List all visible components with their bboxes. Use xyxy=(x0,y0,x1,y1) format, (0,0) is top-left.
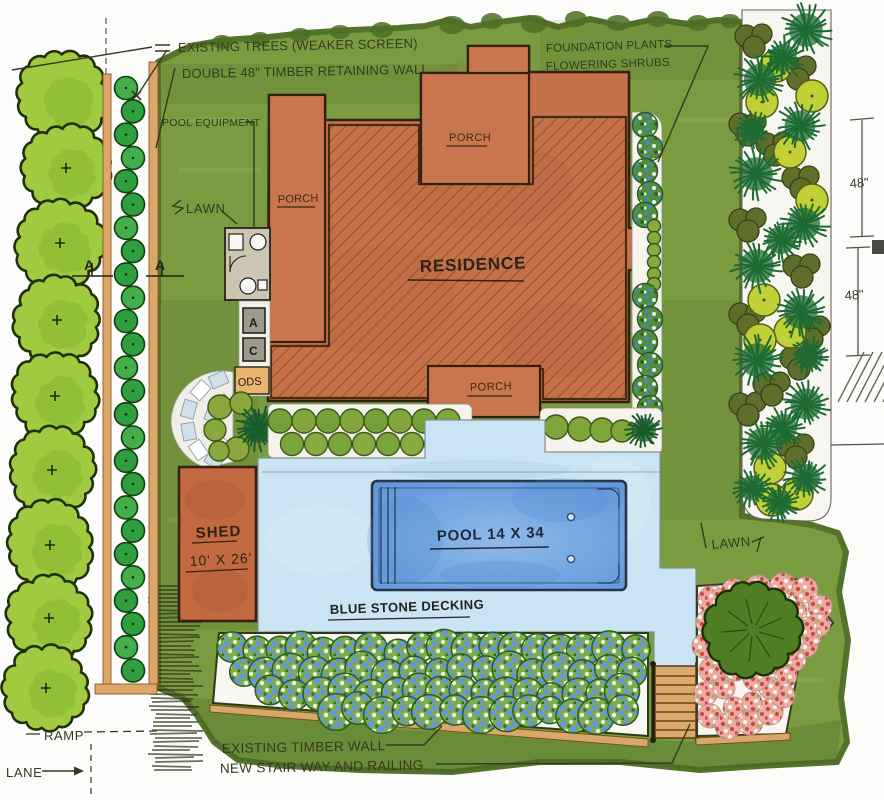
svg-text:48": 48" xyxy=(844,287,864,303)
svg-text:C: C xyxy=(249,344,258,358)
svg-text:10' X 26': 10' X 26' xyxy=(189,550,252,569)
svg-text:A: A xyxy=(155,257,165,273)
svg-text:RESIDENCE: RESIDENCE xyxy=(419,253,526,276)
svg-text:PORCH: PORCH xyxy=(470,380,513,393)
svg-text:PORCH: PORCH xyxy=(449,132,491,144)
svg-text:EXISTING TIMBER WALL: EXISTING TIMBER WALL xyxy=(222,738,386,756)
svg-text:LAWN: LAWN xyxy=(186,201,225,216)
svg-text:LANE: LANE xyxy=(6,765,42,780)
svg-text:PORCH: PORCH xyxy=(278,193,319,206)
svg-text:A: A xyxy=(249,316,258,330)
svg-text:48": 48" xyxy=(849,175,869,191)
svg-text:A: A xyxy=(84,257,94,273)
svg-text:POOL EQUIPMENT: POOL EQUIPMENT xyxy=(162,117,261,129)
svg-text:ODS: ODS xyxy=(238,376,262,389)
svg-text:RAMP: RAMP xyxy=(44,728,84,743)
svg-text:SHED: SHED xyxy=(195,523,242,542)
